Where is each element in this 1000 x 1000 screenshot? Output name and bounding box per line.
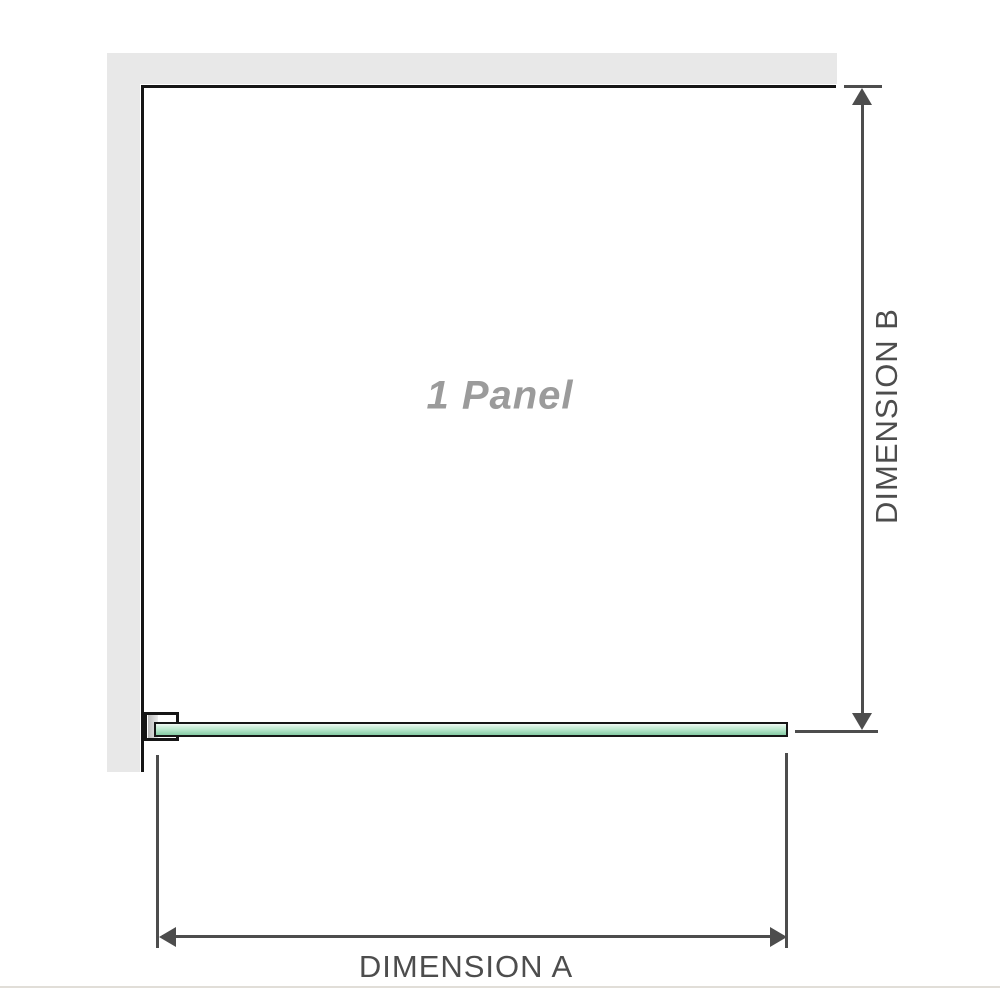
panel-outline <box>141 85 836 772</box>
glass-panel <box>154 722 788 737</box>
dimension-a-right-extension <box>785 753 788 948</box>
dimension-a-label: DIMENSION A <box>359 949 573 985</box>
dimension-b-line <box>861 92 864 724</box>
wall-side <box>107 53 140 772</box>
dimension-b-label: DIMENSION B <box>869 308 905 524</box>
wall-top <box>107 53 837 84</box>
panel-label: 1 Panel <box>426 374 573 419</box>
ground-line <box>0 986 1000 988</box>
arrow-left-icon <box>159 927 176 947</box>
dimension-b-bottom-tick <box>795 730 878 733</box>
arrow-up-icon <box>852 88 872 105</box>
dimension-a-left-extension <box>156 755 159 948</box>
dimension-a-line <box>162 935 784 938</box>
panel-dimension-diagram: 1 Panel DIMENSION B DIMENSION A <box>0 0 1000 1000</box>
arrow-down-icon <box>852 713 872 730</box>
arrow-right-icon <box>770 927 787 947</box>
